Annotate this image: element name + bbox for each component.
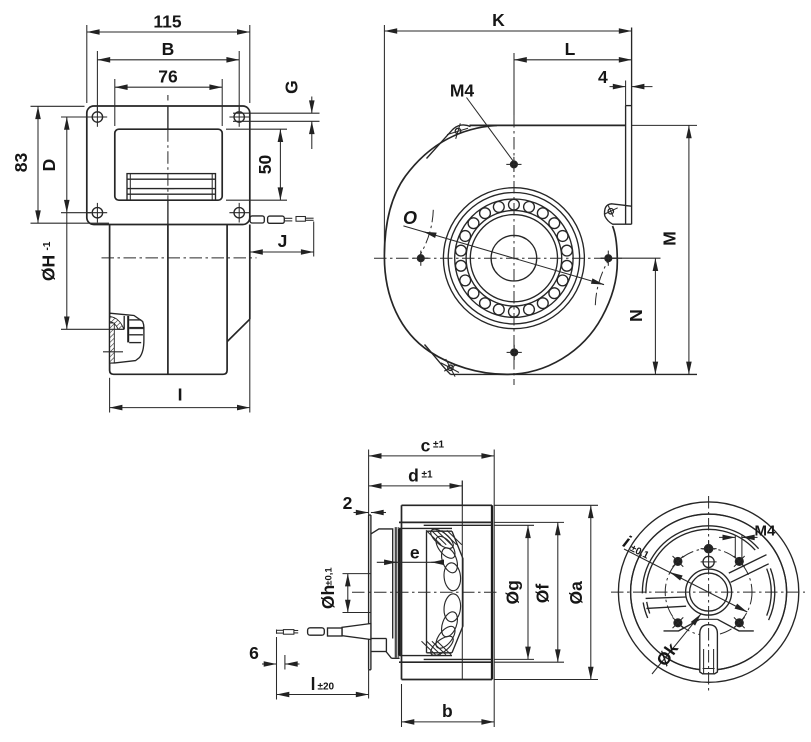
- svg-text:±1: ±1: [433, 440, 444, 451]
- svg-text:c: c: [421, 436, 431, 456]
- svg-text:B: B: [162, 39, 175, 59]
- svg-text:6: 6: [249, 643, 259, 663]
- svg-text:4: 4: [598, 67, 608, 87]
- svg-text:±0,1: ±0,1: [324, 567, 335, 586]
- svg-text:b: b: [442, 701, 453, 721]
- svg-text:K: K: [492, 10, 505, 30]
- svg-text:Øf: Øf: [533, 584, 553, 604]
- svg-text:2: 2: [343, 493, 353, 513]
- svg-text:Øa: Øa: [566, 581, 586, 605]
- svg-text:76: 76: [158, 67, 178, 87]
- svg-text:±20: ±20: [318, 682, 335, 693]
- svg-text:M4: M4: [755, 523, 776, 540]
- svg-text:M: M: [659, 231, 679, 246]
- svg-text:J: J: [278, 231, 288, 251]
- svg-text:115: 115: [153, 12, 181, 32]
- svg-text:Øh: Øh: [318, 585, 338, 609]
- svg-text:d: d: [408, 466, 419, 486]
- svg-text:ØH: ØH: [39, 255, 59, 281]
- svg-text:±1: ±1: [422, 470, 433, 481]
- svg-text:D: D: [39, 159, 59, 172]
- svg-text:O: O: [403, 208, 417, 228]
- svg-text:-1: -1: [42, 241, 53, 250]
- svg-text:50: 50: [255, 155, 275, 175]
- svg-text:l: l: [311, 674, 316, 694]
- svg-text:N: N: [626, 309, 646, 322]
- svg-text:83: 83: [11, 153, 31, 173]
- svg-text:M4: M4: [450, 81, 475, 101]
- svg-text:I: I: [178, 385, 183, 405]
- svg-text:±0,1: ±0,1: [628, 543, 651, 562]
- svg-text:Øg: Øg: [503, 580, 523, 604]
- svg-text:G: G: [282, 80, 302, 94]
- svg-text:e: e: [410, 543, 420, 563]
- svg-text:L: L: [565, 39, 576, 59]
